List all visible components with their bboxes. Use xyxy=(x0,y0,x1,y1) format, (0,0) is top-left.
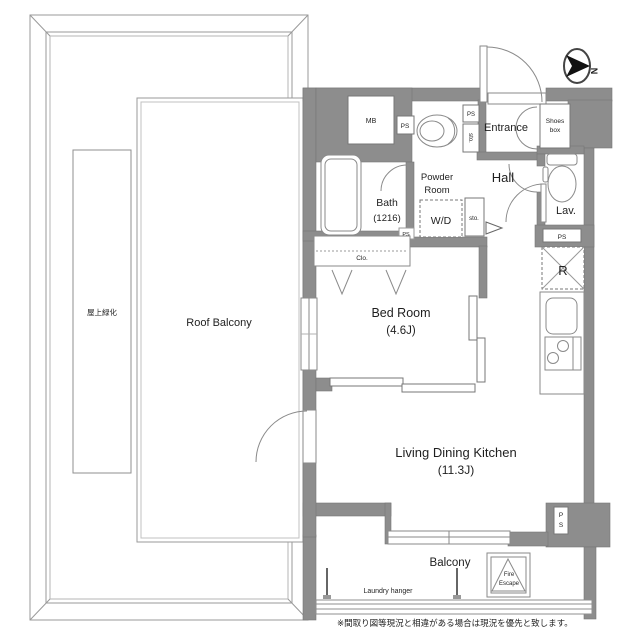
disclaimer-note: ※間取り図等現況と相違がある場合は現況を優先と致します。 xyxy=(337,618,573,629)
fire-escape-label-1: Fire xyxy=(504,572,515,578)
entrance-label: Entrance xyxy=(484,122,528,134)
balcony-window xyxy=(388,531,510,544)
fire-escape-label-2: Escape xyxy=(499,581,520,587)
bedroom-size-label: (4.6J) xyxy=(386,325,416,337)
bath-size-label: (1216) xyxy=(373,213,400,224)
ps-p-label: P xyxy=(559,512,563,519)
laundry-hanger-label: Laundry hanger xyxy=(363,588,413,595)
meter-box-label: MB xyxy=(366,118,377,125)
bedroom-window xyxy=(301,298,317,370)
shoes-box-label-2: box xyxy=(550,127,561,134)
shoes-box-cabinet xyxy=(540,104,570,148)
ps-label-lav: PS xyxy=(558,234,567,241)
powder-room-label-1: Powder xyxy=(421,172,453,183)
closet-label: Clo. xyxy=(356,255,368,262)
bath-label: Bath xyxy=(376,197,398,209)
compass-n-label: N xyxy=(589,68,599,75)
ps-label-bath: PS xyxy=(402,232,410,238)
bathtub xyxy=(321,155,361,235)
ps-s-label: S xyxy=(559,522,564,529)
shoes-box-label-1: Shoes xyxy=(546,118,565,125)
roof-balcony-label: Roof Balcony xyxy=(186,317,252,329)
closet xyxy=(314,236,410,294)
ldk-label: Living Dining Kitchen xyxy=(395,445,516,460)
kitchen-sink xyxy=(546,298,577,334)
powder-toilet xyxy=(417,115,457,147)
lav-label: Lav. xyxy=(556,205,576,217)
floor-plan: Roof Balcony 屋上緑化 MB PS PS sto. Entrance… xyxy=(0,0,640,639)
north-compass-icon xyxy=(564,49,590,83)
hall-label: Hall xyxy=(492,170,515,185)
entrance-door xyxy=(480,46,546,104)
kitchen-counter xyxy=(540,292,584,394)
step-marker xyxy=(486,222,502,234)
sto-label-entrance: sto. xyxy=(467,133,473,143)
ldk-size-label: (11.3J) xyxy=(438,463,474,477)
wd-label: W/D xyxy=(431,215,452,227)
powder-room-label-2: Room xyxy=(424,185,449,196)
lav-toilet xyxy=(543,154,577,202)
floor-plan-page: Roof Balcony 屋上緑化 MB PS PS sto. Entrance… xyxy=(0,0,640,639)
balcony-label: Balcony xyxy=(430,557,471,569)
sto-label-hall: sto. xyxy=(469,216,479,222)
bedroom-label: Bed Room xyxy=(371,306,430,320)
ps-label-entrance: PS xyxy=(467,112,475,118)
refrigerator-label: R xyxy=(558,263,567,278)
balcony-railing xyxy=(316,600,592,614)
ps-label-top: PS xyxy=(401,123,410,130)
green-roof-label: 屋上緑化 xyxy=(87,307,117,317)
bath-door-arc xyxy=(381,165,407,191)
